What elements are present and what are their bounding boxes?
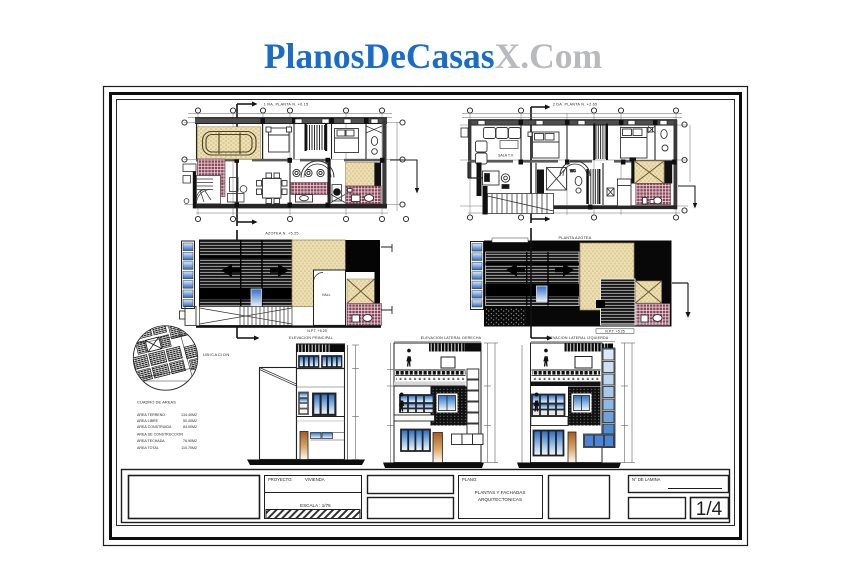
svg-text:SALA T.V.: SALA T.V. [498, 154, 514, 158]
svg-text:UBICACION: UBICACION [203, 352, 230, 357]
svg-text:ARQUITECTONICAS: ARQUITECTONICAS [478, 497, 522, 502]
svg-text:N.P.T. +5.25: N.P.T. +5.25 [605, 330, 624, 334]
svg-text:AREA CONSTRUIDA: AREA CONSTRUIDA [137, 425, 172, 429]
svg-text:76.90M2: 76.90M2 [183, 439, 197, 443]
svg-text:AREA LIBRE: AREA LIBRE [137, 419, 159, 423]
svg-text:134.40M2: 134.40M2 [181, 413, 197, 417]
svg-text:1/4: 1/4 [696, 499, 723, 520]
svg-text:84.00M2: 84.00M2 [183, 425, 197, 429]
svg-text:50.40M2: 50.40M2 [183, 419, 197, 423]
svg-text:ESCALA : 1/75: ESCALA : 1/75 [300, 503, 331, 508]
svg-text:WC: WC [570, 169, 576, 173]
svg-text:AREA DE CONSTRUCCION: AREA DE CONSTRUCCION [137, 433, 183, 437]
svg-text:N.P.T. +5.25: N.P.T. +5.25 [307, 329, 326, 333]
svg-text:PROYECTO:: PROYECTO: [268, 477, 293, 482]
svg-text:AREA TOTAL: AREA TOTAL [137, 446, 159, 450]
svg-text:2 DA. PLANTA N. +2.65: 2 DA. PLANTA N. +2.65 [553, 103, 598, 107]
svg-text:1 RA. PLANTA N. +0.15: 1 RA. PLANTA N. +0.15 [264, 103, 309, 107]
svg-text:N° DE LAMINA: N° DE LAMINA [632, 477, 661, 482]
svg-text:AZOTEA N. +5.25: AZOTEA N. +5.25 [265, 232, 299, 236]
svg-text:PLANO:: PLANO: [462, 477, 477, 482]
svg-text:PLANTA AZOTEA: PLANTA AZOTEA [559, 236, 592, 240]
svg-text:PLANTAS Y FACHADAS: PLANTAS Y FACHADAS [475, 490, 526, 495]
svg-text:PlanosDeCasasX.Com: PlanosDeCasasX.Com [264, 36, 602, 76]
svg-text:AREA TERRENO: AREA TERRENO [137, 413, 165, 417]
svg-text:AREA TECHADA: AREA TECHADA [137, 439, 165, 443]
svg-text:ELEVACION LATERAL DERECHA: ELEVACION LATERAL DERECHA [421, 336, 482, 340]
svg-text:ELEVACION PRINCIPAL: ELEVACION PRINCIPAL [289, 336, 333, 340]
svg-text:HALL: HALL [322, 293, 331, 297]
svg-text:VIVIENDA: VIVIENDA [305, 477, 325, 482]
svg-text:ELEVACION LATERAL IZQUIERDA: ELEVACION LATERAL IZQUIERDA [546, 336, 609, 340]
svg-text:110.70M2: 110.70M2 [181, 446, 197, 450]
svg-text:CUADRO DE AREAS: CUADRO DE AREAS [137, 400, 176, 405]
